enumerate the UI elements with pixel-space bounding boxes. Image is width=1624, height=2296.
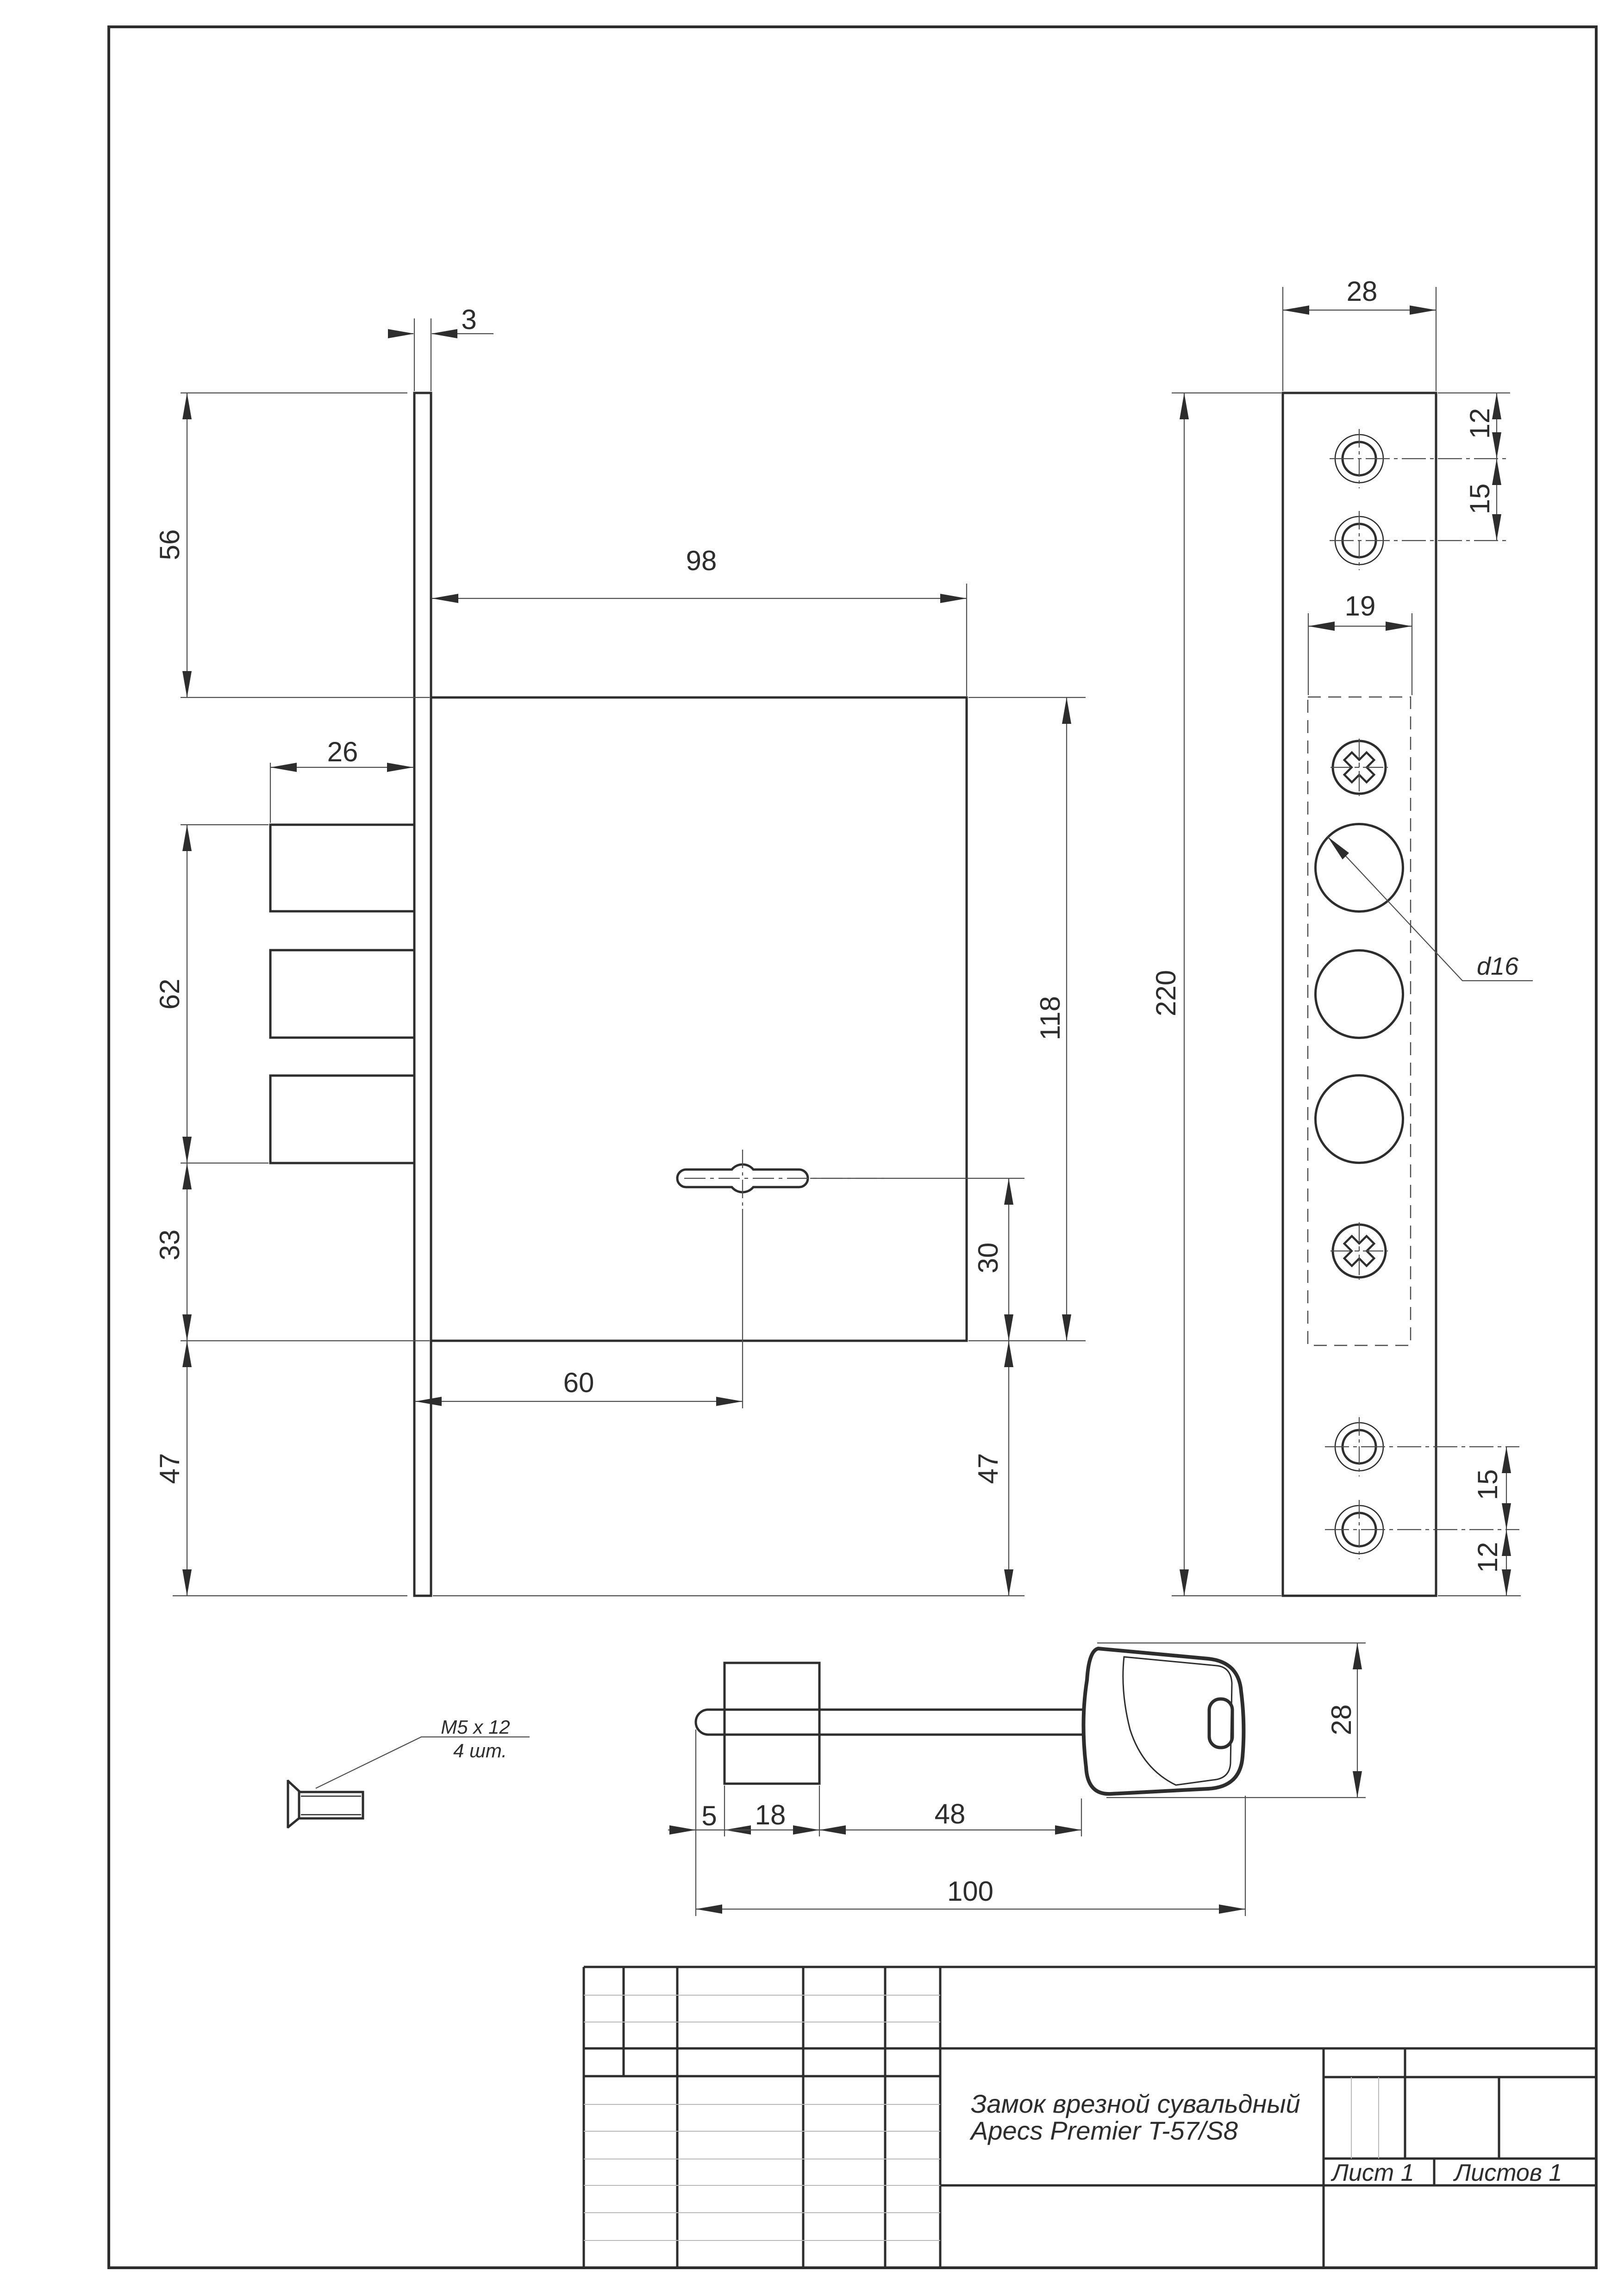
svg-text:Apecs Premier T-57/S8: Apecs Premier T-57/S8 bbox=[969, 2116, 1238, 2145]
svg-text:56: 56 bbox=[154, 529, 185, 560]
svg-text:28: 28 bbox=[1326, 1705, 1357, 1736]
svg-text:18: 18 bbox=[755, 1799, 786, 1830]
svg-text:Листов 1: Листов 1 bbox=[1453, 2159, 1562, 2186]
svg-text:12: 12 bbox=[1464, 408, 1495, 439]
svg-text:100: 100 bbox=[947, 1876, 993, 1907]
svg-text:28: 28 bbox=[1347, 276, 1378, 307]
svg-text:Замок врезной сувальдный: Замок врезной сувальдный bbox=[971, 2089, 1300, 2118]
svg-text:15: 15 bbox=[1464, 484, 1495, 515]
svg-text:19: 19 bbox=[1345, 591, 1376, 622]
svg-text:Лист 1: Лист 1 bbox=[1330, 2159, 1414, 2186]
svg-text:M5 x 12: M5 x 12 bbox=[441, 1716, 510, 1738]
svg-text:26: 26 bbox=[327, 736, 358, 767]
svg-text:98: 98 bbox=[686, 545, 717, 576]
svg-text:3: 3 bbox=[461, 304, 476, 335]
svg-text:47: 47 bbox=[973, 1453, 1004, 1484]
svg-text:48: 48 bbox=[935, 1798, 966, 1829]
svg-text:5: 5 bbox=[701, 1800, 717, 1831]
svg-text:47: 47 bbox=[154, 1453, 185, 1484]
svg-text:4 шт.: 4 шт. bbox=[453, 1740, 507, 1761]
svg-text:118: 118 bbox=[1035, 996, 1066, 1040]
svg-text:15: 15 bbox=[1472, 1469, 1503, 1500]
svg-text:60: 60 bbox=[563, 1367, 594, 1398]
svg-text:d16: d16 bbox=[1477, 952, 1519, 980]
svg-text:30: 30 bbox=[973, 1243, 1004, 1274]
svg-text:62: 62 bbox=[154, 979, 185, 1010]
svg-text:33: 33 bbox=[154, 1230, 185, 1261]
svg-text:12: 12 bbox=[1472, 1542, 1503, 1573]
svg-text:220: 220 bbox=[1150, 970, 1181, 1016]
